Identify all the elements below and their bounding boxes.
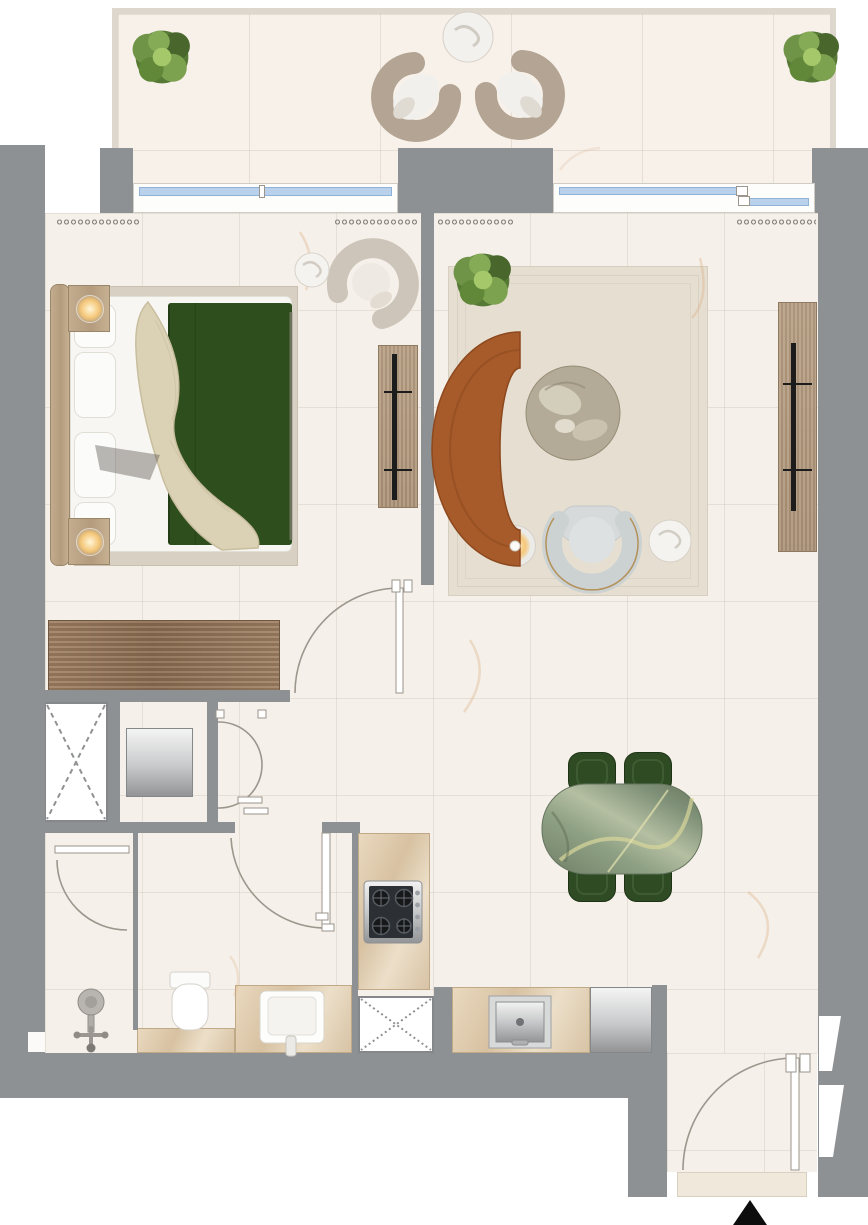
living-plant [454,254,511,307]
living-side-table [649,520,691,562]
balcony-plant-left [133,31,190,84]
wall-vent-notch [819,1016,844,1157]
terracotta-sofa [432,332,520,566]
plan-overlay [0,0,868,1225]
floor-plan [0,0,868,1225]
balcony-lounge-chair-right [486,61,554,129]
bathroom-sink [260,991,324,1056]
dining-table [542,784,702,874]
gas-hob [364,881,422,943]
floor-lamp-finial [510,541,520,551]
shower [74,989,109,1053]
kitchen-sink [489,996,551,1048]
toilet [170,972,210,1030]
door-swings [57,588,795,1170]
bed-throw [136,302,259,550]
north-arrow [731,1200,769,1225]
balcony-plant-right [784,32,840,83]
coffee-table [526,366,620,460]
bedroom-armchair [337,248,409,319]
bedroom-side-table [295,253,329,287]
balcony-lounge-chair-left [382,63,450,131]
door-leaves [55,588,799,1170]
shaft-cross [47,705,431,1050]
bed-crease [95,445,160,480]
balcony-side-table [443,12,493,62]
living-armchair [546,506,638,590]
